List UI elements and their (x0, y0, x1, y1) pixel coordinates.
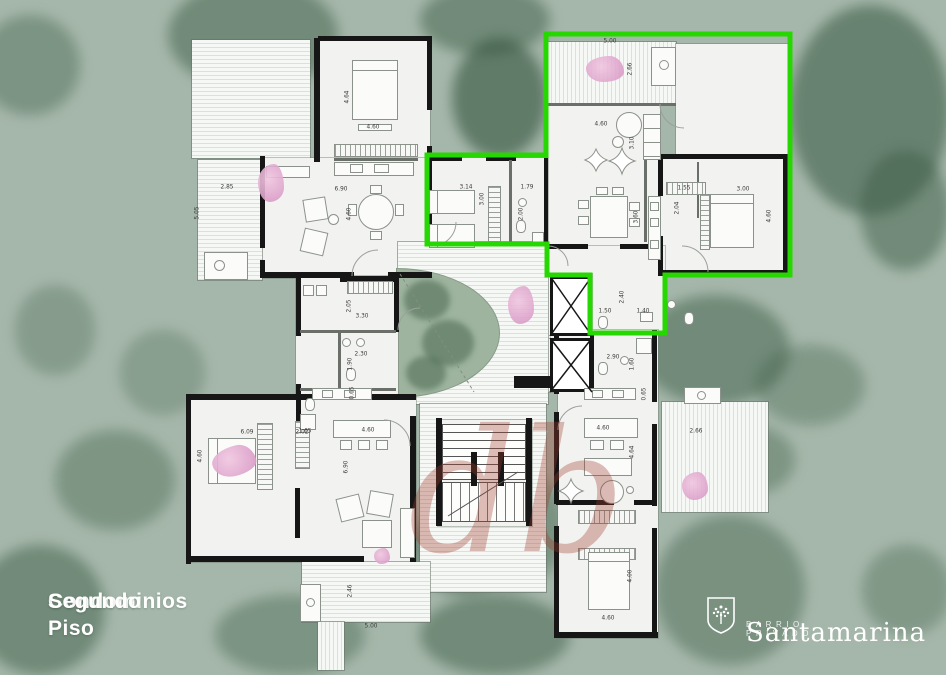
dimension-label: 1.60 (629, 358, 635, 371)
dimension-label: 4.60 (766, 210, 772, 223)
dimension-label: 6.90 (343, 461, 349, 474)
dimension-label: 6.09 (241, 429, 254, 435)
dimension-label: 0.65 (349, 387, 355, 400)
dimension-label: 3.10 (629, 137, 635, 150)
dimension-label: 1.40 (637, 308, 650, 314)
dimension-labels-layer: 4.644.606.904.602.855.055.002.664.603.10… (0, 0, 946, 670)
dimension-label: 4.64 (629, 446, 635, 459)
dimension-label: 3.00 (479, 193, 485, 206)
dimension-label: 2.66 (690, 428, 703, 434)
dimension-label: 3.14 (460, 184, 473, 190)
dimension-label: 2.85 (221, 184, 234, 190)
dimension-label: 4.60 (197, 450, 203, 463)
dimension-label: 1.55 (678, 185, 691, 191)
tree-shield-icon (706, 596, 736, 639)
dimension-label: 3.30 (356, 313, 369, 319)
dimension-label: 4.60 (597, 425, 610, 431)
dimension-label: 2.90 (607, 354, 620, 360)
dimension-label: 3.00 (737, 186, 750, 192)
dimension-label: 5.05 (194, 207, 200, 220)
dimension-label: 4.60 (346, 208, 352, 221)
dimension-label: 2.05 (346, 300, 352, 313)
dimension-label: 1.50 (599, 308, 612, 314)
floor-plan-scene: 4.644.606.904.602.855.055.002.664.603.10… (0, 0, 946, 670)
dimension-label: 3.60 (633, 211, 639, 224)
dimension-label: 5.00 (365, 623, 378, 629)
dimension-label: 4.60 (367, 124, 380, 130)
dimension-label: 0.65 (641, 388, 647, 401)
dimension-label: 4.60 (595, 121, 608, 127)
brand-logo: Santamarina BARRIO PRIVADO (706, 596, 746, 639)
dimension-label: 2.30 (355, 351, 368, 357)
title-line2: Segundo Piso (48, 588, 141, 642)
dimension-label: 5.00 (604, 38, 617, 44)
dimension-label: 2.40 (619, 291, 625, 304)
dimension-label: 4.60 (362, 427, 375, 433)
dimension-label: 4.60 (602, 615, 615, 621)
dimension-label: 2.02 (296, 429, 309, 435)
dimension-label: 1.79 (521, 184, 534, 190)
dimension-label: 2.00 (518, 208, 524, 221)
dimension-label: 2.66 (627, 63, 633, 76)
dimension-label: 4.64 (344, 91, 350, 104)
dimension-label: 4.00 (627, 570, 633, 583)
dimension-label: 2.46 (347, 585, 353, 598)
dimension-label: 1.90 (347, 358, 353, 371)
brand-tagline: BARRIO PRIVADO (746, 620, 813, 638)
dimension-label: 6.90 (335, 186, 348, 192)
dimension-label: 2.04 (674, 202, 680, 215)
